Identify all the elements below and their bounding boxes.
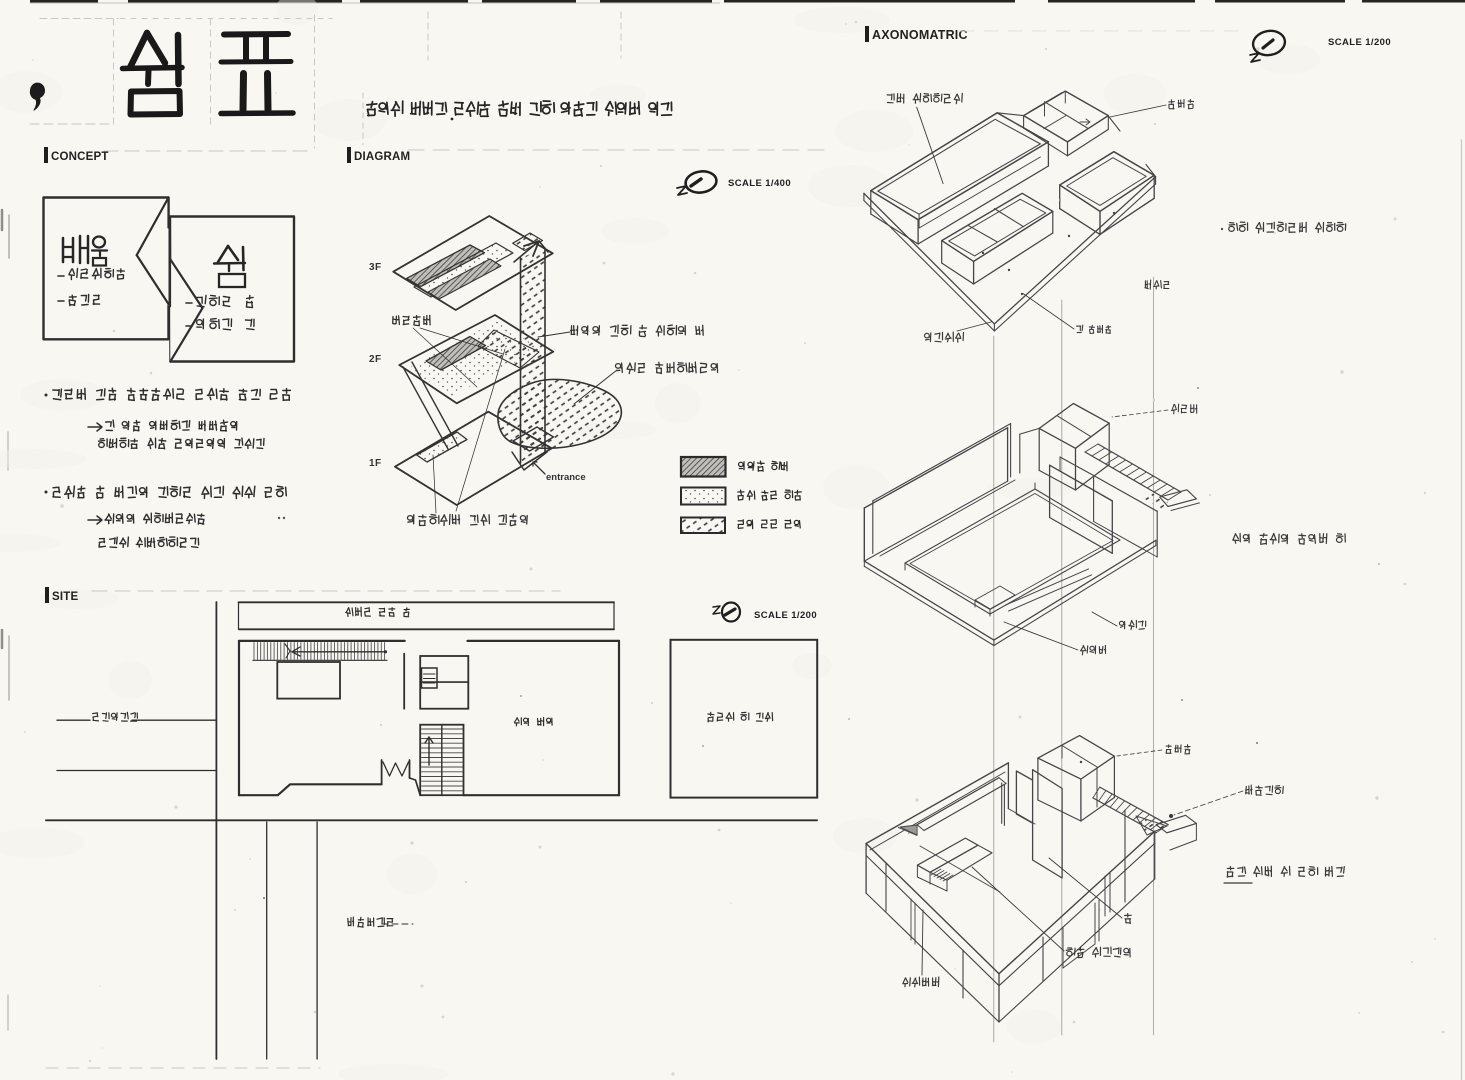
svg-text:2F: 2F [369,354,382,365]
svg-text:CONCEPT: CONCEPT [51,151,109,163]
svg-text:SITE: SITE [52,591,78,603]
svg-text:entrance: entrance [546,472,586,483]
svg-text:SCALE 1/200: SCALE 1/200 [1328,37,1391,48]
svg-text:3F: 3F [369,262,382,273]
svg-text:1F: 1F [369,458,382,469]
svg-text:SCALE 1/200: SCALE 1/200 [754,610,817,621]
svg-text:DIAGRAM: DIAGRAM [354,151,410,163]
svg-text:AXONOMATRIC: AXONOMATRIC [872,28,968,42]
svg-text:SCALE 1/400: SCALE 1/400 [728,178,791,189]
